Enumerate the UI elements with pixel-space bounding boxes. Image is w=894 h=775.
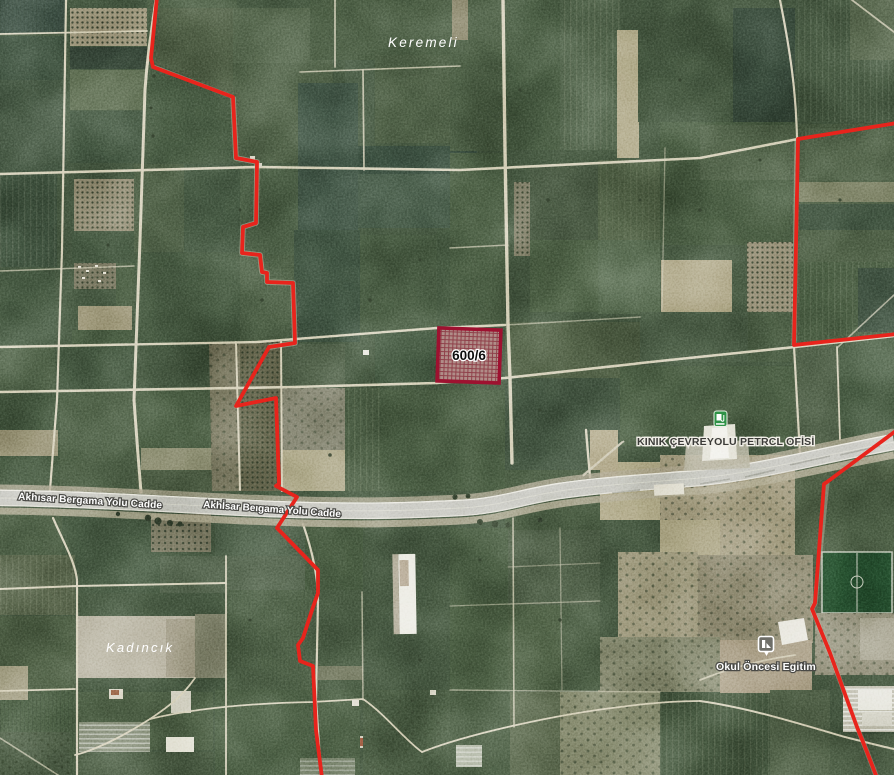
svg-text:KINIK ÇEVREYOLU PETRCL OFİSİ: KINIK ÇEVREYOLU PETRCL OFİSİ — [637, 435, 815, 448]
svg-text:Kadıncık: Kadıncık — [106, 640, 174, 655]
svg-text:Keremeli: Keremeli — [388, 35, 459, 50]
svg-text:Okul Öncesi Egitim: Okul Öncesi Egitim — [716, 660, 816, 673]
svg-text:600/6: 600/6 — [452, 348, 486, 363]
